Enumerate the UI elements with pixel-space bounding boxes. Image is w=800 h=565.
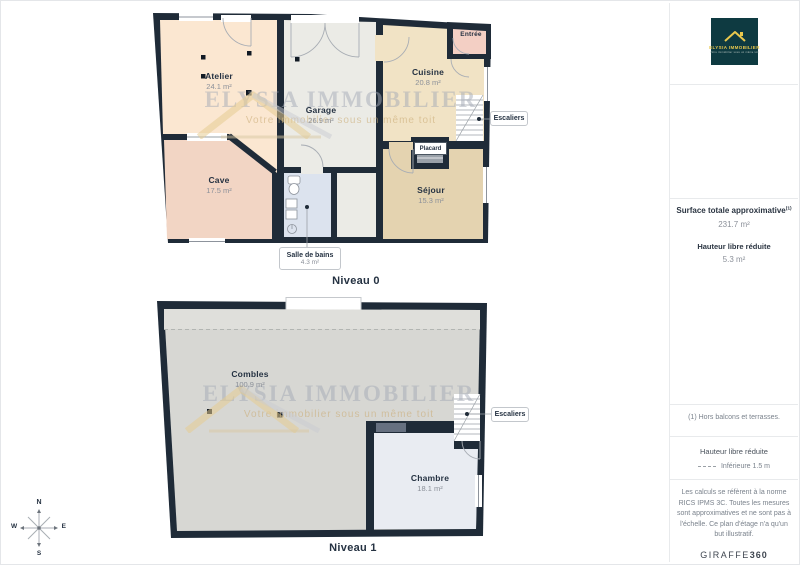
compass-west-label: W (11, 523, 17, 530)
floorplan-page: ELYSIA IMMOBILIER Votre immobilier sous … (0, 0, 800, 565)
logo-tagline: Votre immobilier sous un même toit (710, 51, 759, 54)
sidebar-divider (670, 479, 798, 480)
room-label-placard: Placard (414, 142, 447, 155)
sidebar-divider (670, 198, 798, 199)
reduced-height-title: Hauteur libre réduite (673, 242, 795, 251)
stairs-callout-floor1: Escaliers (491, 407, 529, 422)
legend-title: Hauteur libre réduite (673, 447, 795, 456)
sidebar-divider (670, 404, 798, 405)
legend: Hauteur libre réduite Inférieure 1.5 m (673, 447, 795, 470)
legal-block: Les calculs se réfèrent à la norme RICS … (673, 488, 795, 560)
footnote-text: (1) Hors balcons et terrasses. (673, 414, 795, 421)
floor0-plan: ELYSIA IMMOBILIER Votre immobilier sous … (151, 7, 529, 275)
logo-brand-text: ELYSIA IMMOBILIER (709, 45, 760, 50)
sidebar-divider (670, 84, 798, 85)
disclaimer-text: Les calculs se réfèrent à la norme RICS … (673, 488, 795, 541)
stairs-callout-floor0: Escaliers (490, 111, 528, 126)
surface-summary: Surface totale approximative(1) 231.7 m²… (673, 206, 795, 264)
floor1-plan-drawing (149, 297, 529, 547)
footnote-ref: (1) (786, 206, 792, 211)
bathroom-callout: Salle de bains 4.3 m² (279, 247, 341, 270)
compass-north-label: N (9, 499, 69, 506)
surface-total-value: 231.7 m² (673, 220, 795, 229)
floor1-plan: ELYSIA IMMOBILIER Votre immobilier sous … (149, 297, 529, 547)
reduced-height-value: 5.3 m² (673, 255, 795, 264)
logo-roof-icon (722, 30, 748, 43)
compass-east-label: E (62, 523, 66, 530)
giraffe360-brand: GIRAFFE360 (673, 550, 795, 560)
agency-logo: ELYSIA IMMOBILIER Votre immobilier sous … (711, 18, 758, 65)
compass-rose-icon: N W E S (9, 499, 69, 559)
compass-south-label: S (9, 550, 69, 557)
floor0-title: Niveau 0 (256, 275, 456, 287)
legend-item-label: Inférieure 1.5 m (721, 463, 770, 470)
reduced-height-dash-swatch (698, 466, 716, 467)
sidebar-divider (670, 436, 798, 437)
floor0-plan-drawing (151, 7, 529, 275)
surface-total-title: Surface totale approximative(1) (673, 206, 795, 215)
floor1-title: Niveau 1 (253, 542, 453, 554)
